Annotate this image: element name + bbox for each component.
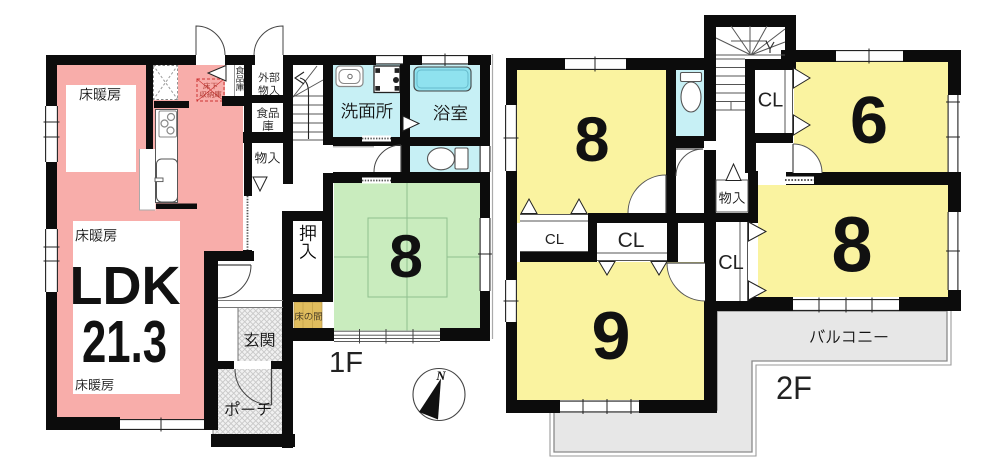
- svg-text:2F: 2F: [776, 370, 812, 406]
- svg-text:8: 8: [389, 223, 423, 290]
- svg-text:CL: CL: [758, 90, 784, 112]
- svg-text:8: 8: [832, 200, 873, 288]
- svg-text:8: 8: [575, 105, 610, 175]
- svg-text:9: 9: [592, 298, 631, 374]
- svg-text:CL: CL: [545, 231, 564, 248]
- svg-text:LDK: LDK: [70, 256, 181, 316]
- svg-text:6: 6: [850, 83, 888, 158]
- svg-text:21.3: 21.3: [82, 309, 167, 375]
- svg-text:1F: 1F: [329, 347, 363, 379]
- svg-text:N: N: [435, 368, 446, 383]
- svg-text:CL: CL: [718, 252, 744, 274]
- svg-text:CL: CL: [618, 229, 645, 252]
